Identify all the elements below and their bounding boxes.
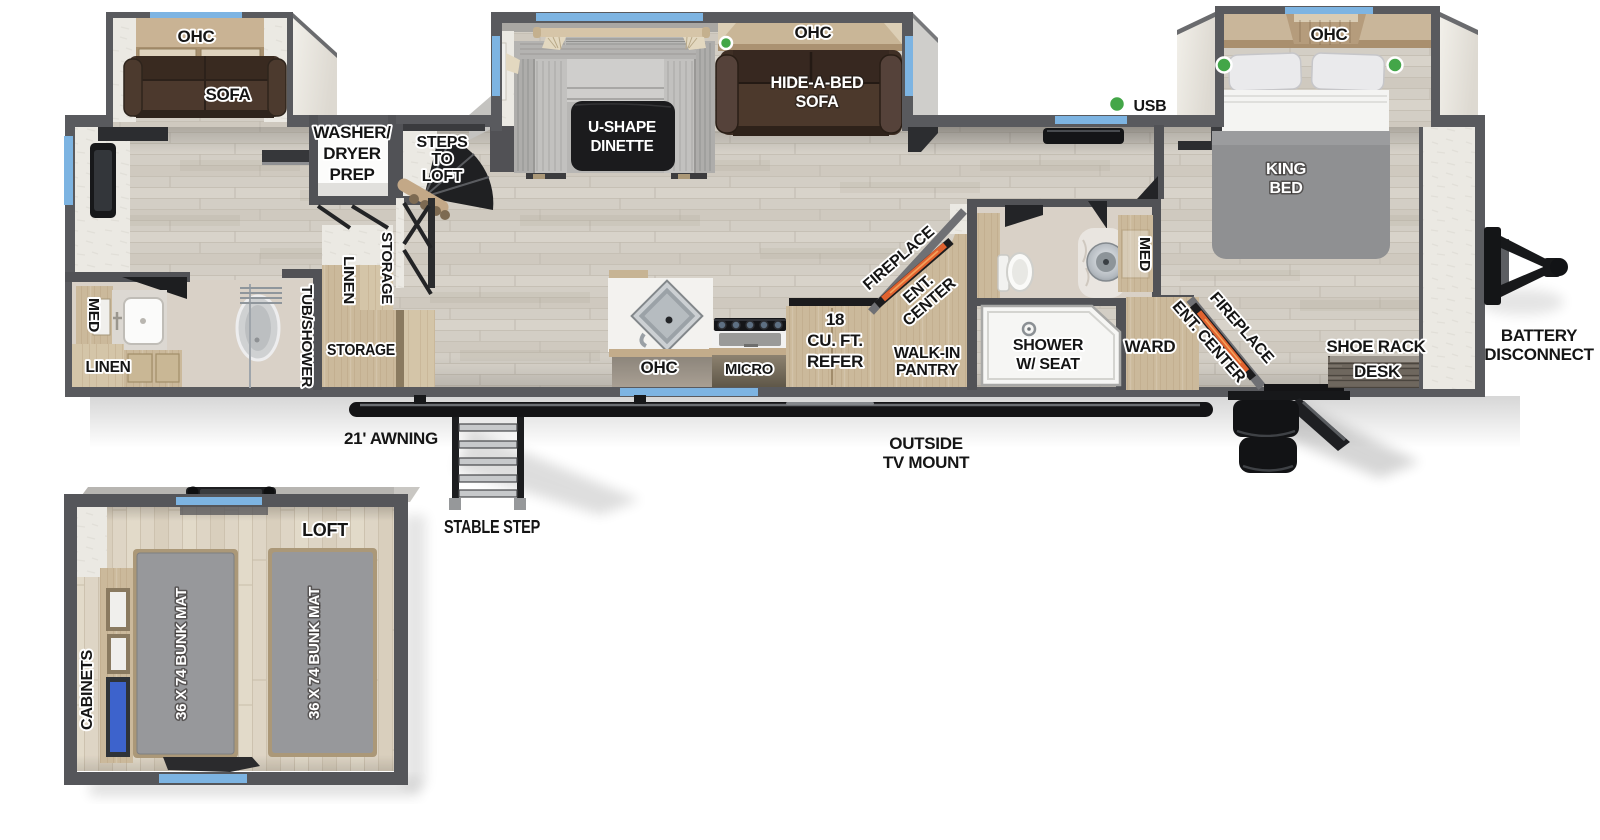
svg-text:W/ SEAT: W/ SEAT [1016,356,1080,373]
svg-text:USB: USB [1134,98,1167,115]
svg-text:STEPS: STEPS [417,134,469,151]
svg-text:WARD: WARD [1125,337,1176,356]
svg-text:HIDE-A-BED: HIDE-A-BED [771,73,864,92]
svg-text:21' AWNING: 21' AWNING [344,429,438,448]
svg-text:SHOE RACK: SHOE RACK [1326,337,1426,356]
svg-text:REFER: REFER [807,352,863,371]
svg-text:DRYER: DRYER [323,144,380,163]
svg-text:BED: BED [1270,180,1303,197]
svg-text:LINEN: LINEN [340,256,357,304]
svg-text:SOFA: SOFA [796,92,839,111]
svg-text:DESK: DESK [1354,362,1401,381]
svg-text:PREP: PREP [329,165,374,184]
svg-text:WASHER/: WASHER/ [313,123,391,142]
svg-text:DINETTE: DINETTE [591,138,655,155]
svg-text:TO: TO [431,151,452,168]
svg-text:CABINETS: CABINETS [79,649,96,730]
svg-text:TUB/SHOWER: TUB/SHOWER [298,285,315,387]
svg-text:WALK-IN: WALK-IN [894,345,960,362]
svg-text:CU. FT.: CU. FT. [807,331,863,350]
svg-text:STORAGE: STORAGE [327,342,396,359]
svg-text:LOFT: LOFT [422,168,463,185]
svg-text:TV MOUNT: TV MOUNT [883,453,970,472]
svg-text:MED: MED [1136,237,1153,271]
svg-text:SOFA: SOFA [205,85,250,104]
svg-text:STABLE STEP: STABLE STEP [444,517,540,537]
svg-text:PANTRY: PANTRY [896,362,959,379]
svg-text:36 X 74 BUNK MAT: 36 X 74 BUNK MAT [306,587,323,719]
svg-text:SHOWER: SHOWER [1013,337,1084,354]
svg-text:OHC: OHC [1311,25,1348,44]
svg-text:MICRO: MICRO [725,361,774,378]
svg-text:OHC: OHC [178,27,215,46]
svg-text:DISCONNECT: DISCONNECT [1484,345,1594,364]
svg-text:OHC: OHC [641,358,678,377]
svg-text:KING: KING [1266,161,1306,178]
svg-text:OHC: OHC [795,23,832,42]
svg-text:OUTSIDE: OUTSIDE [889,434,962,453]
svg-text:MED: MED [85,298,102,332]
svg-text:LOFT: LOFT [302,520,348,540]
svg-text:18: 18 [826,310,844,329]
svg-text:STORAGE: STORAGE [378,232,395,304]
svg-text:36 X 74 BUNK MAT: 36 X 74 BUNK MAT [173,588,190,720]
svg-text:LINEN: LINEN [86,359,131,376]
svg-text:BATTERY: BATTERY [1501,326,1578,345]
svg-text:U-SHAPE: U-SHAPE [588,119,657,136]
